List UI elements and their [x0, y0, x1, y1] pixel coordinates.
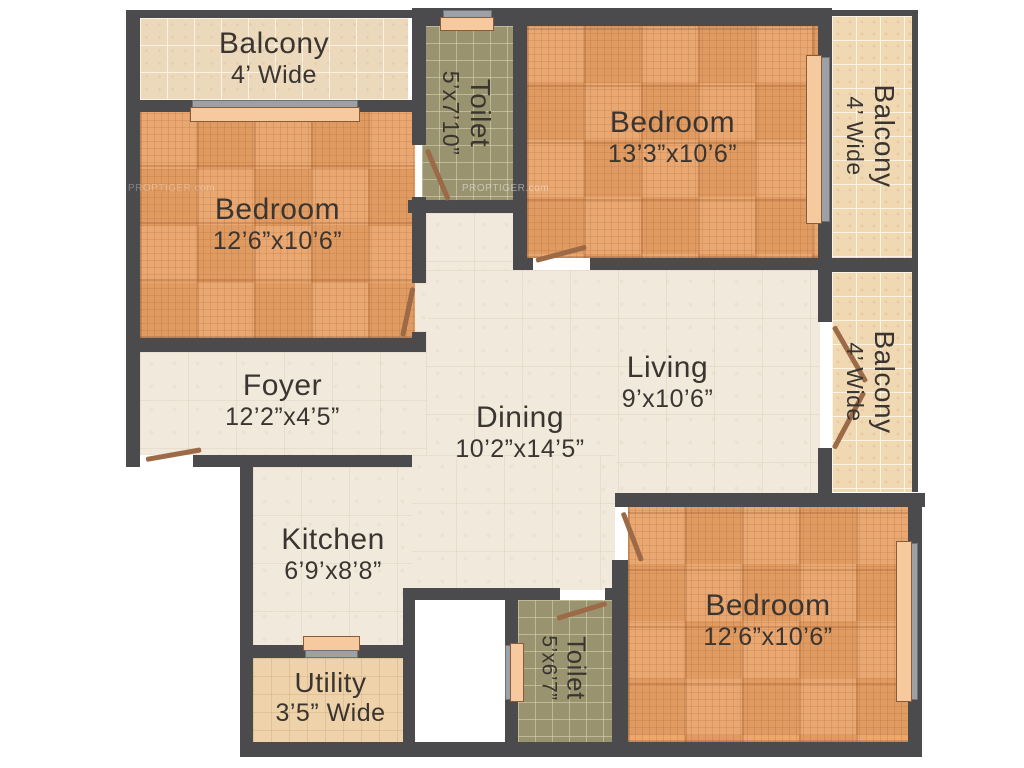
- room-name: Bedroom: [628, 588, 908, 623]
- room-dims: 10’2”x14’5”: [420, 435, 620, 465]
- floor-plan: Balcony 4’ Wide Bedroom 12’6”x10’6” Toil…: [0, 0, 1024, 768]
- room-utility: Utility 3’5” Wide: [253, 666, 408, 729]
- room-name: Foyer: [150, 368, 415, 403]
- wall: [193, 455, 412, 467]
- room-bedroom-bottom-right: Bedroom 12’6”x10’6”: [628, 588, 908, 653]
- wall: [818, 270, 832, 322]
- room-toilet-top: Toilet 5’x7’10”: [437, 71, 497, 156]
- wall: [513, 8, 527, 270]
- wall: [527, 8, 832, 26]
- room-dims: 5’x7’10”: [437, 71, 464, 156]
- wall: [240, 455, 253, 757]
- wall: [832, 10, 918, 16]
- room-name: Dining: [420, 400, 620, 435]
- room-dims: 3’5” Wide: [253, 699, 408, 729]
- room-name: Toilet: [561, 635, 592, 700]
- room-name: Balcony: [868, 84, 901, 187]
- room-balcony-mid-right: Balcony 4’ Wide: [841, 330, 901, 433]
- room-name: Toilet: [464, 71, 497, 156]
- room-name: Balcony: [140, 26, 408, 61]
- room-bedroom-top-right: Bedroom 13’3”x10’6”: [527, 105, 818, 170]
- wall: [408, 200, 527, 213]
- room-dims: 12’2”x4’5”: [150, 403, 415, 433]
- wall: [605, 588, 628, 600]
- wall: [240, 742, 922, 757]
- wall: [615, 493, 925, 507]
- room-name: Balcony: [868, 330, 901, 433]
- room-dims: 12’6”x10’6”: [628, 623, 908, 653]
- room-bedroom-top-left: Bedroom 12’6”x10’6”: [140, 192, 415, 257]
- room-balcony-top-right: Balcony 4’ Wide: [841, 84, 901, 187]
- room-name: Bedroom: [527, 105, 818, 140]
- wall: [513, 258, 533, 270]
- window-sill-toilet-top: [440, 17, 494, 31]
- room-dims: 12’6”x10’6”: [140, 227, 415, 257]
- window-sill-kitchen: [303, 636, 360, 651]
- room-name: Bedroom: [140, 192, 415, 227]
- room-name: Kitchen: [253, 522, 413, 557]
- wall: [912, 272, 918, 492]
- room-dims: 5’x6’7”: [536, 635, 561, 700]
- wall: [590, 258, 818, 270]
- room-dims: 4’ Wide: [140, 61, 408, 91]
- room-dims: 13’3”x10’6”: [527, 140, 818, 170]
- room-kitchen: Kitchen 6’9’x8’8”: [253, 522, 413, 587]
- dining-lower-floor: [408, 455, 615, 590]
- room-toilet-bottom: Toilet 5’x6’7”: [536, 635, 591, 700]
- wall: [518, 588, 560, 600]
- room-dims: 4’ Wide: [841, 330, 868, 433]
- room-balcony-top-left: Balcony 4’ Wide: [140, 26, 408, 91]
- room-dining: Dining 10’2”x14’5”: [420, 400, 620, 465]
- wall: [912, 16, 918, 258]
- window-sill-toilet-bottom: [510, 643, 524, 702]
- wall: [412, 8, 426, 145]
- room-dims: 6’9’x8’8”: [253, 557, 413, 587]
- room-name: Living: [560, 350, 775, 385]
- window-sill-bedroom-top-left: [190, 107, 360, 122]
- watermark-text: PROPTIGER.com: [462, 183, 549, 194]
- dining-upper-floor: [426, 213, 515, 270]
- wall: [126, 338, 426, 352]
- wall: [126, 10, 420, 18]
- watermark-text: PROPTIGER.com: [128, 183, 215, 194]
- window-frame-kitchen: [305, 650, 358, 658]
- room-foyer: Foyer 12’2”x4’5”: [150, 368, 415, 433]
- room-name: Utility: [253, 666, 408, 699]
- room-dims: 4’ Wide: [841, 84, 868, 187]
- wall: [403, 588, 518, 600]
- wall: [126, 10, 140, 467]
- wall: [818, 258, 918, 272]
